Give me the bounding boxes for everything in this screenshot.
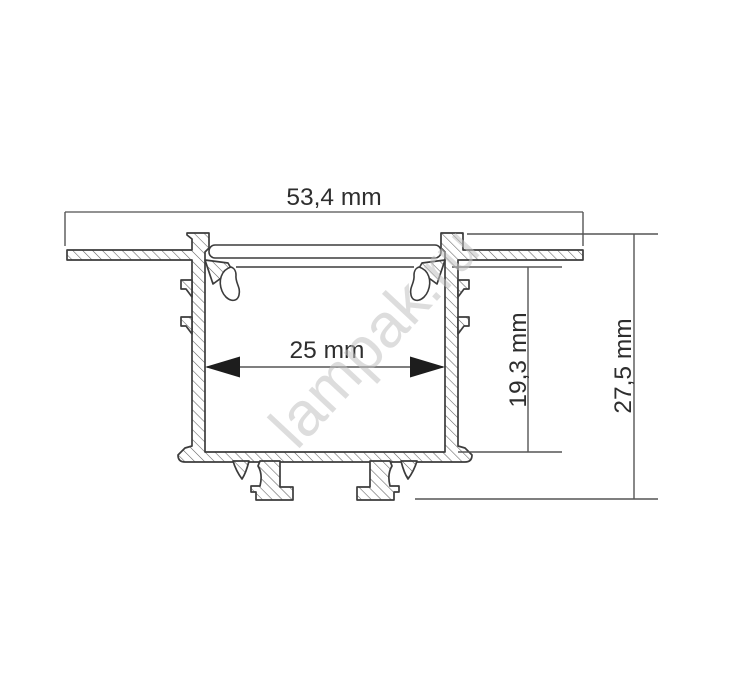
left-wall-tooth-upper <box>181 280 192 297</box>
inner-depth-label: 19,3 mm <box>505 312 532 407</box>
cover-left-hook <box>220 267 239 300</box>
total-width-label: 53,4 mm <box>286 184 381 211</box>
left-foot-finger <box>233 461 249 479</box>
drawing-canvas: 53,4 mm 25 mm 19,3 mm 27,5 mm lampak.ru <box>0 0 755 677</box>
right-foot-finger <box>401 461 417 479</box>
profile-cross-section-drawing: 53,4 mm 25 mm 19,3 mm 27,5 mm lampak.ru <box>0 0 755 677</box>
right-foot <box>357 461 399 500</box>
left-wall-tooth-lower <box>181 317 192 334</box>
inner-width-right-arrowhead <box>410 357 445 378</box>
dimension-inner-depth: 19,3 mm <box>452 267 562 452</box>
left-foot <box>251 461 293 500</box>
total-height-label: 27,5 mm <box>610 318 637 413</box>
dimension-total-width: 53,4 mm <box>65 184 583 246</box>
inner-width-left-arrowhead <box>205 357 240 378</box>
right-wall-tooth-lower <box>458 317 469 334</box>
